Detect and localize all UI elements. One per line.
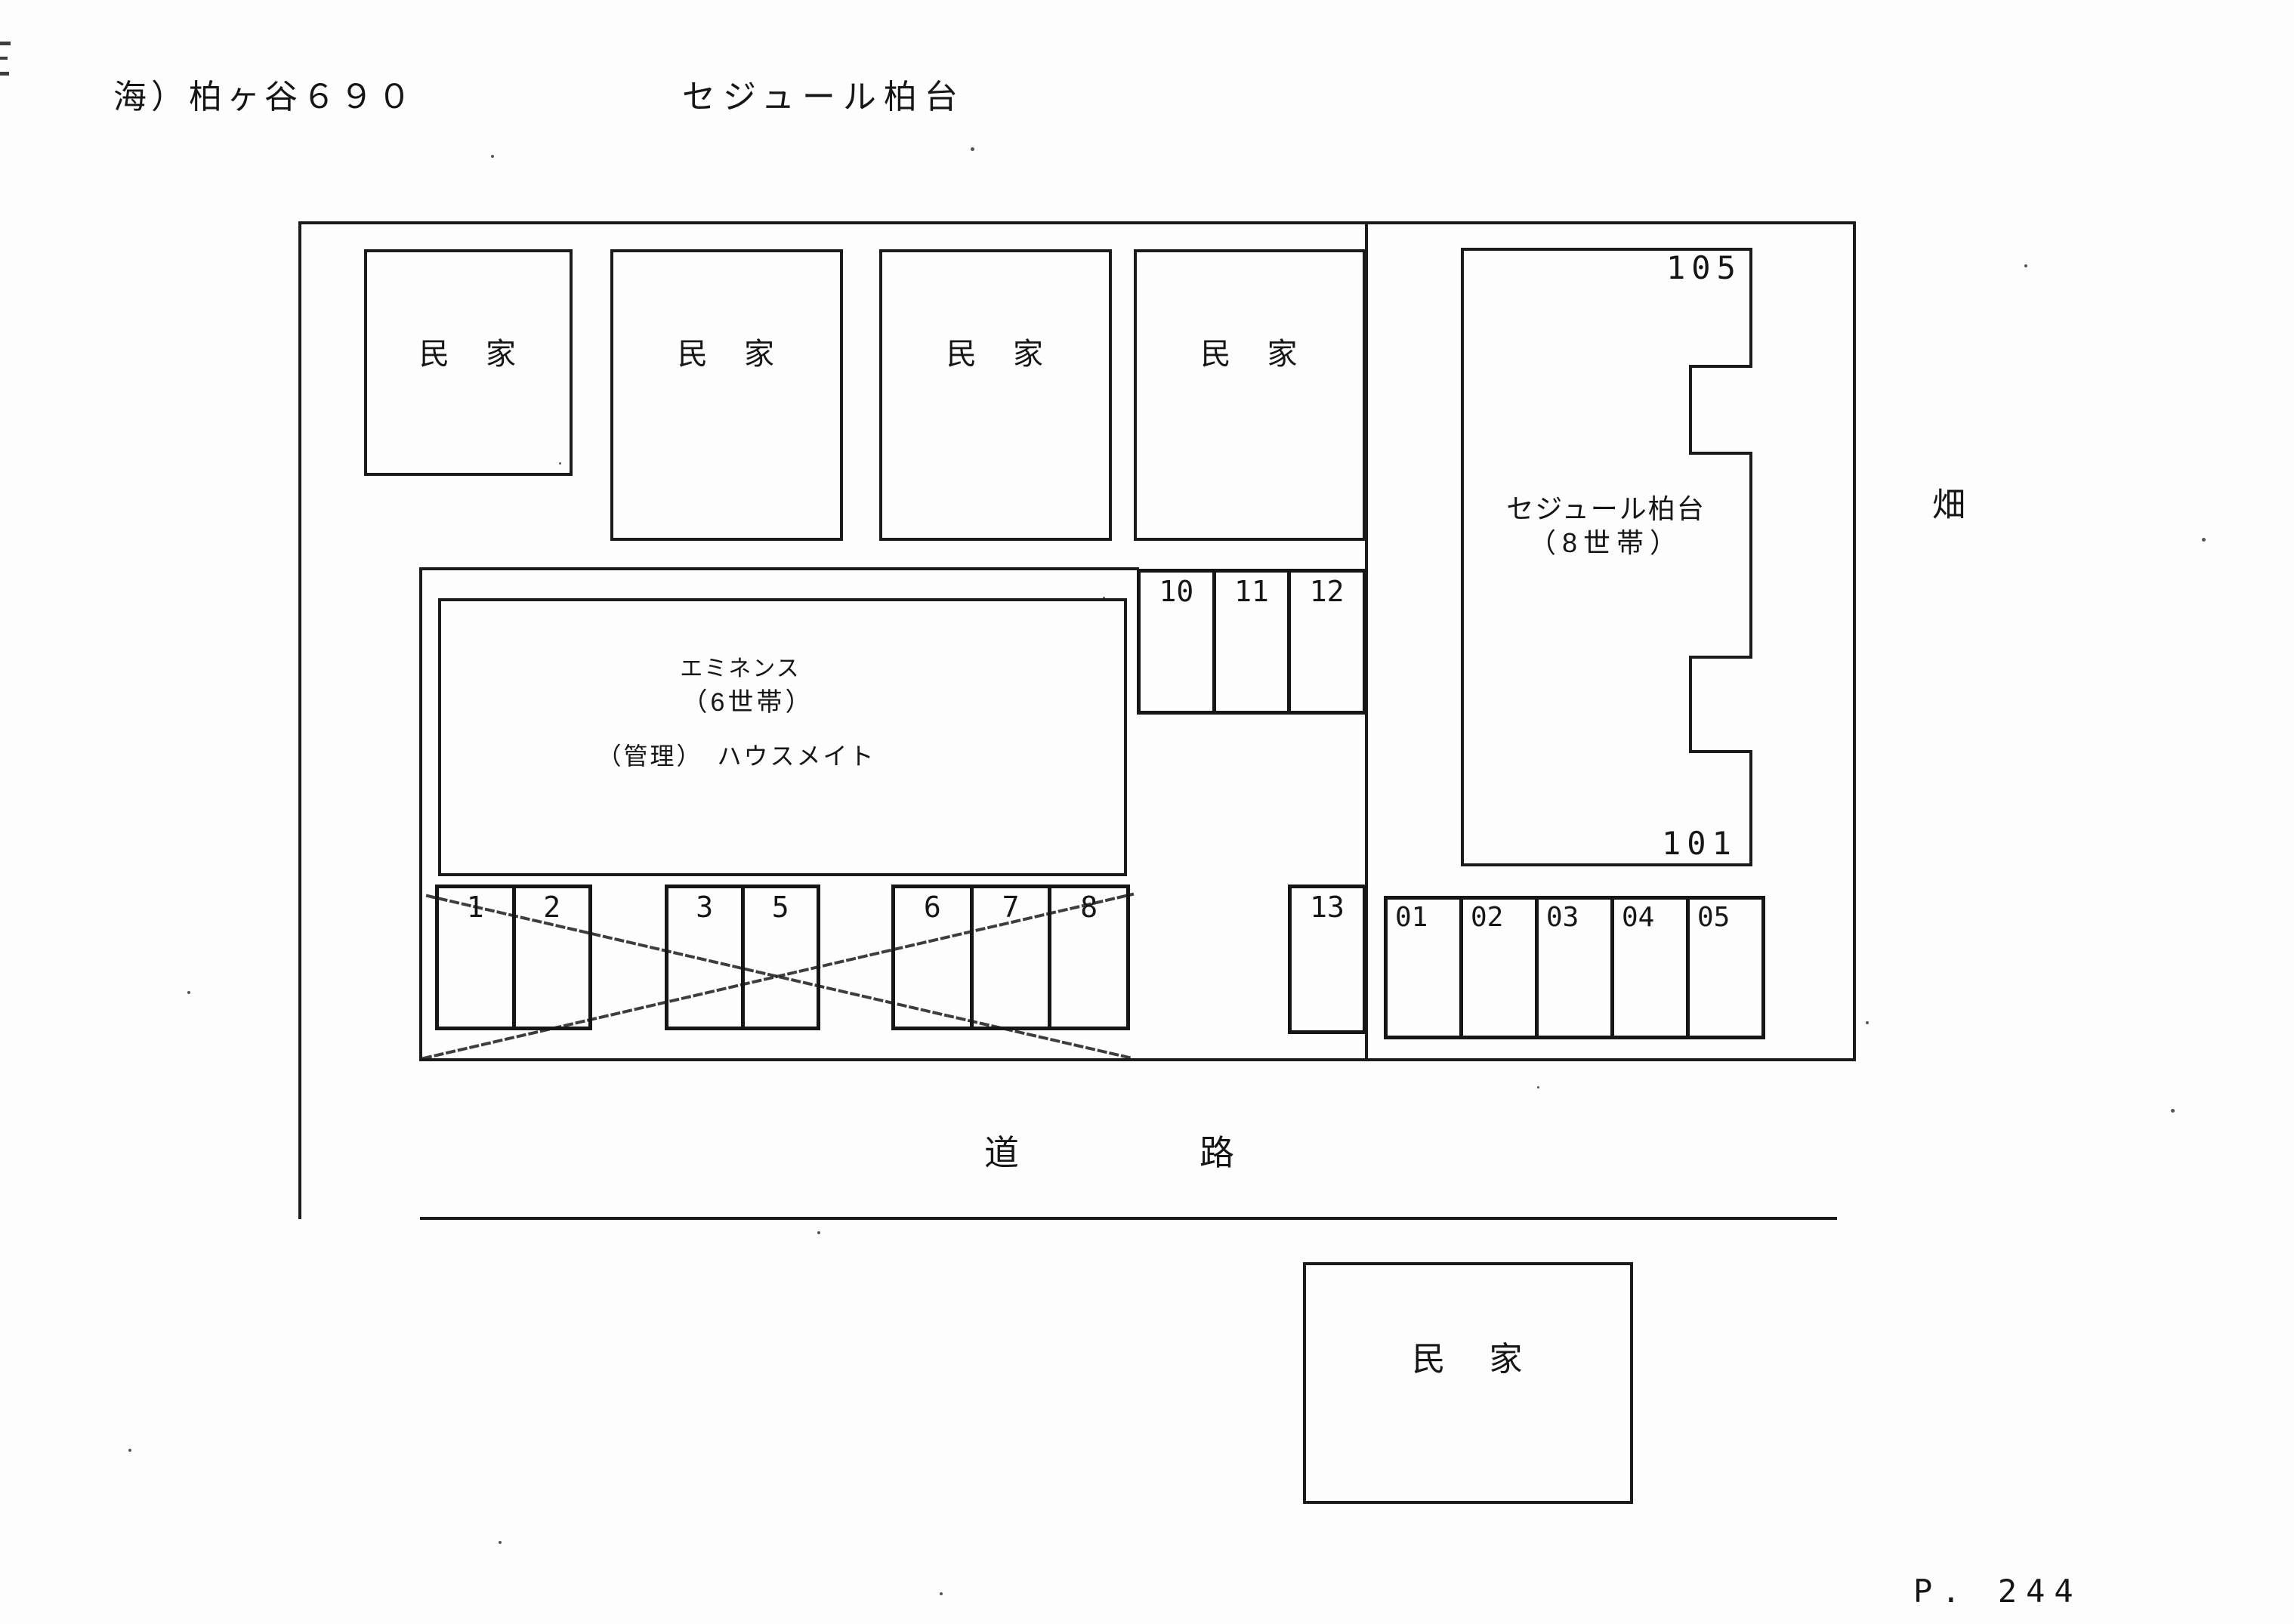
scan-speck [971, 147, 974, 151]
field-label: 畑 [1932, 477, 1965, 526]
header-site-code: 海）柏ヶ谷６９０ [113, 69, 415, 118]
house-box-4: 民 家 [1134, 249, 1366, 541]
parking-stall-01: 01 [1388, 900, 1459, 1036]
scan-speck [2024, 264, 2027, 267]
scan-speck [1866, 1021, 1869, 1024]
house-2-label: 家 [744, 329, 776, 373]
house-3-label: 家 [1013, 329, 1045, 373]
house-bottom-label: 民 [1413, 1332, 1447, 1380]
parking-stall-13: 13 [1292, 888, 1363, 1030]
parking-stall-04: 04 [1610, 900, 1686, 1036]
room-101-label: 101 [1662, 825, 1737, 862]
parking-stall-8: 8 [1048, 888, 1126, 1027]
scan-artifact [0, 72, 9, 76]
parking-stall-1: 1 [439, 888, 512, 1027]
eminence-name: エミネンス [597, 650, 884, 683]
scan-speck [2171, 1109, 2175, 1113]
house-1-label: 民 [419, 329, 451, 373]
parking-stall-3: 3 [668, 888, 741, 1027]
house-4-label: 家 [1267, 329, 1299, 373]
site-boundary-drawing [0, 0, 2294, 1624]
room-105-label: 105 [1666, 249, 1742, 286]
parking-group-b: 3 5 [665, 885, 820, 1030]
header-site-name: セジュール柏台 [682, 69, 965, 118]
house-box-bottom: 民 家 [1303, 1262, 1633, 1504]
scan-speck [499, 1541, 502, 1544]
scan-speck [940, 1592, 943, 1595]
house-box-1: 民 家 [364, 249, 573, 476]
scan-speck [491, 155, 494, 158]
parking-stall-12: 12 [1287, 573, 1363, 711]
house-box-2: 民 家 [610, 249, 843, 541]
house-bottom-label: 家 [1490, 1332, 1524, 1380]
parking-stall-10: 10 [1141, 573, 1212, 711]
parking-group-c: 6 7 8 [891, 885, 1130, 1030]
parking-stall-13-box: 13 [1288, 885, 1366, 1034]
parking-stall-03: 03 [1535, 900, 1610, 1036]
scan-speck [187, 991, 190, 994]
site-plan-page: 海）柏ヶ谷６９０ セジュール柏台 民 家 民 家 民 家 民 家 エミネンス （… [0, 0, 2294, 1624]
scan-speck [817, 1231, 820, 1234]
parking-group-upper: 10 11 12 [1137, 569, 1366, 715]
house-1-label: 家 [486, 329, 517, 373]
road-label-first: 道 [984, 1125, 1019, 1175]
sejour-units: （8世帯） [1458, 521, 1754, 560]
parking-stall-2: 2 [512, 888, 589, 1027]
page-number: P. 244 [1913, 1573, 2083, 1610]
scan-speck [2202, 538, 2206, 542]
eminence-management: （管理） ハウスメイト [574, 737, 899, 772]
parking-group-a: 1 2 [435, 885, 592, 1030]
scan-speck [128, 1449, 131, 1452]
eminence-units: （6世帯） [604, 681, 891, 718]
road-label-second: 路 [1199, 1125, 1234, 1175]
parking-stall-7: 7 [970, 888, 1048, 1027]
house-4-label: 民 [1201, 329, 1233, 373]
house-3-label: 民 [946, 329, 978, 373]
scan-speck [1103, 597, 1105, 599]
parking-group-east: 01 02 03 04 05 [1384, 896, 1765, 1039]
parking-stall-6: 6 [895, 888, 970, 1027]
scan-speck [559, 462, 561, 465]
parking-stall-02: 02 [1459, 900, 1535, 1036]
scan-speck [1537, 1086, 1539, 1088]
parking-stall-11: 11 [1212, 573, 1288, 711]
parking-stall-05: 05 [1686, 900, 1761, 1036]
scan-artifact [0, 57, 8, 60]
house-box-3: 民 家 [879, 249, 1112, 541]
scan-artifact [0, 42, 11, 45]
house-2-label: 民 [678, 329, 709, 373]
parking-stall-5: 5 [741, 888, 817, 1027]
